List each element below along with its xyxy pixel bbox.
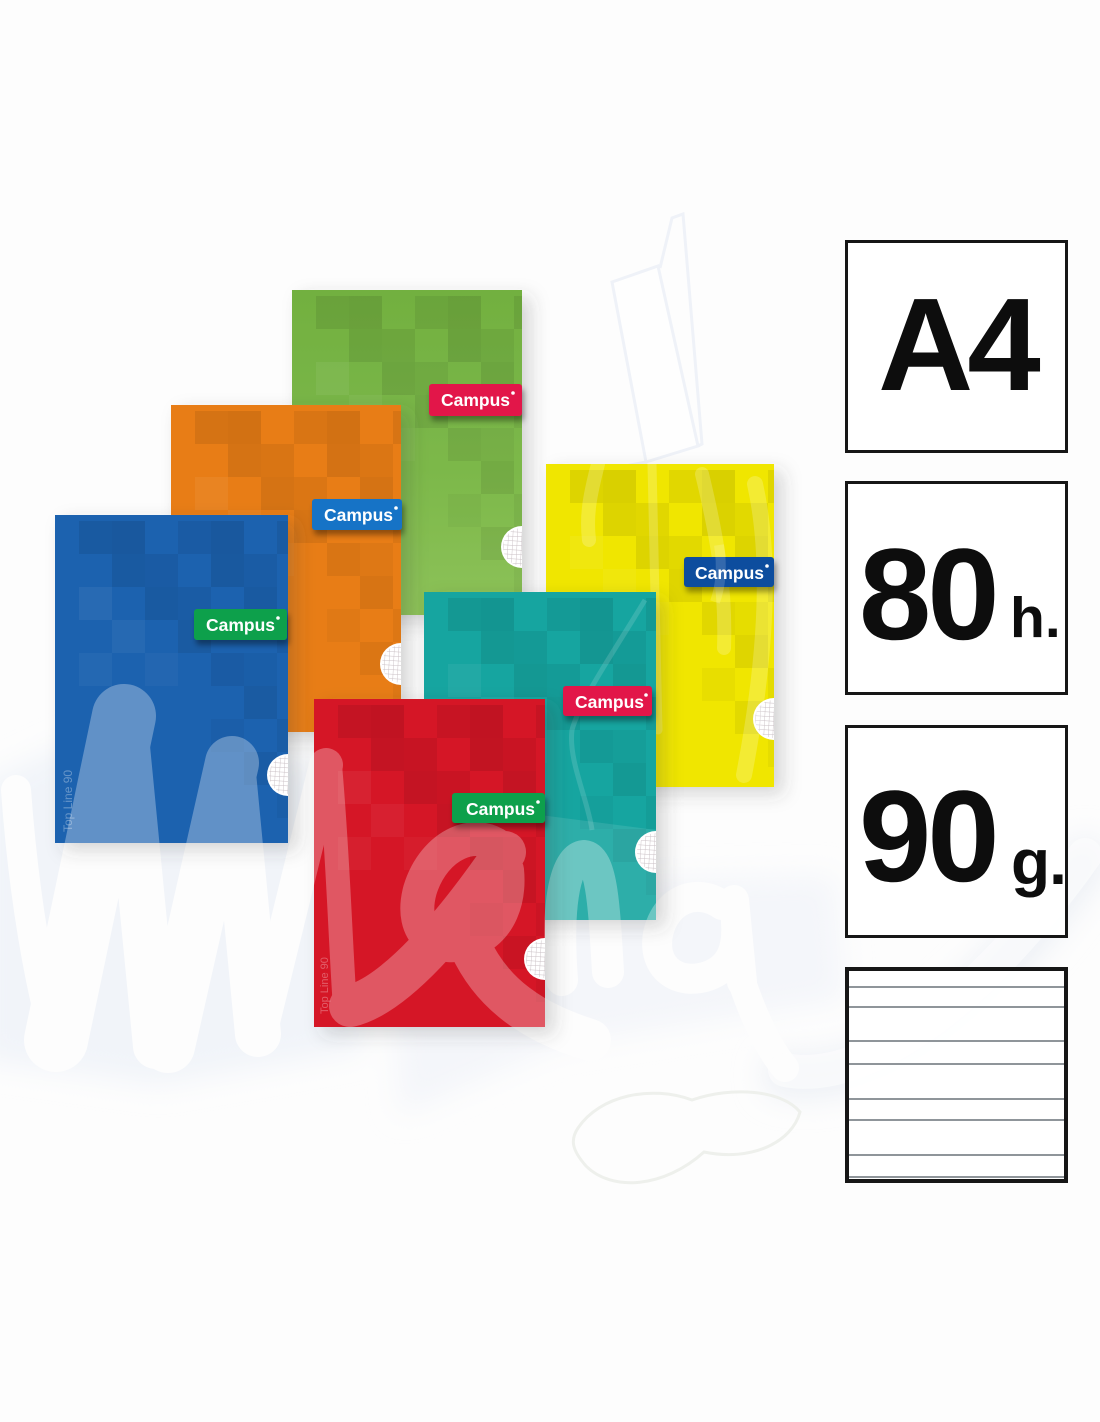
svg-text:Campus: Campus bbox=[206, 615, 275, 635]
svg-text:Campus: Campus bbox=[441, 390, 510, 410]
svg-text:Campus: Campus bbox=[575, 692, 644, 712]
svg-text:Top Line 90: Top Line 90 bbox=[61, 770, 75, 832]
svg-text:Campus: Campus bbox=[324, 505, 393, 525]
svg-text:Campus: Campus bbox=[695, 563, 764, 583]
svg-text:Top Line 90: Top Line 90 bbox=[319, 957, 331, 1014]
svg-text:Campus: Campus bbox=[466, 799, 535, 819]
